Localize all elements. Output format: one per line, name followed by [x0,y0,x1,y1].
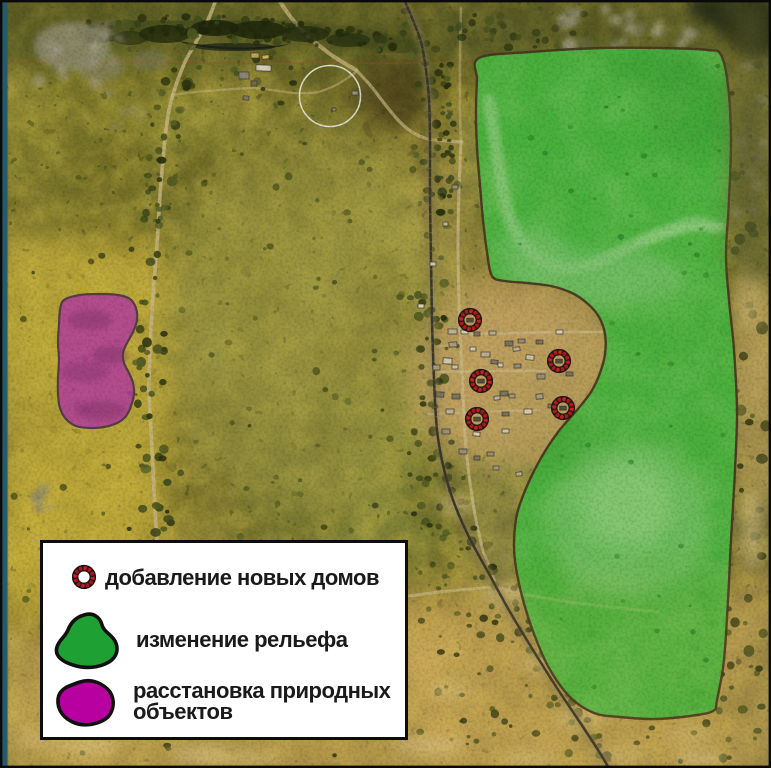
svg-text:добавление новых домов: добавление новых домов [105,565,379,590]
svg-text:изменение рельефа: изменение рельефа [136,627,349,652]
svg-text:объектов: объектов [133,699,232,724]
